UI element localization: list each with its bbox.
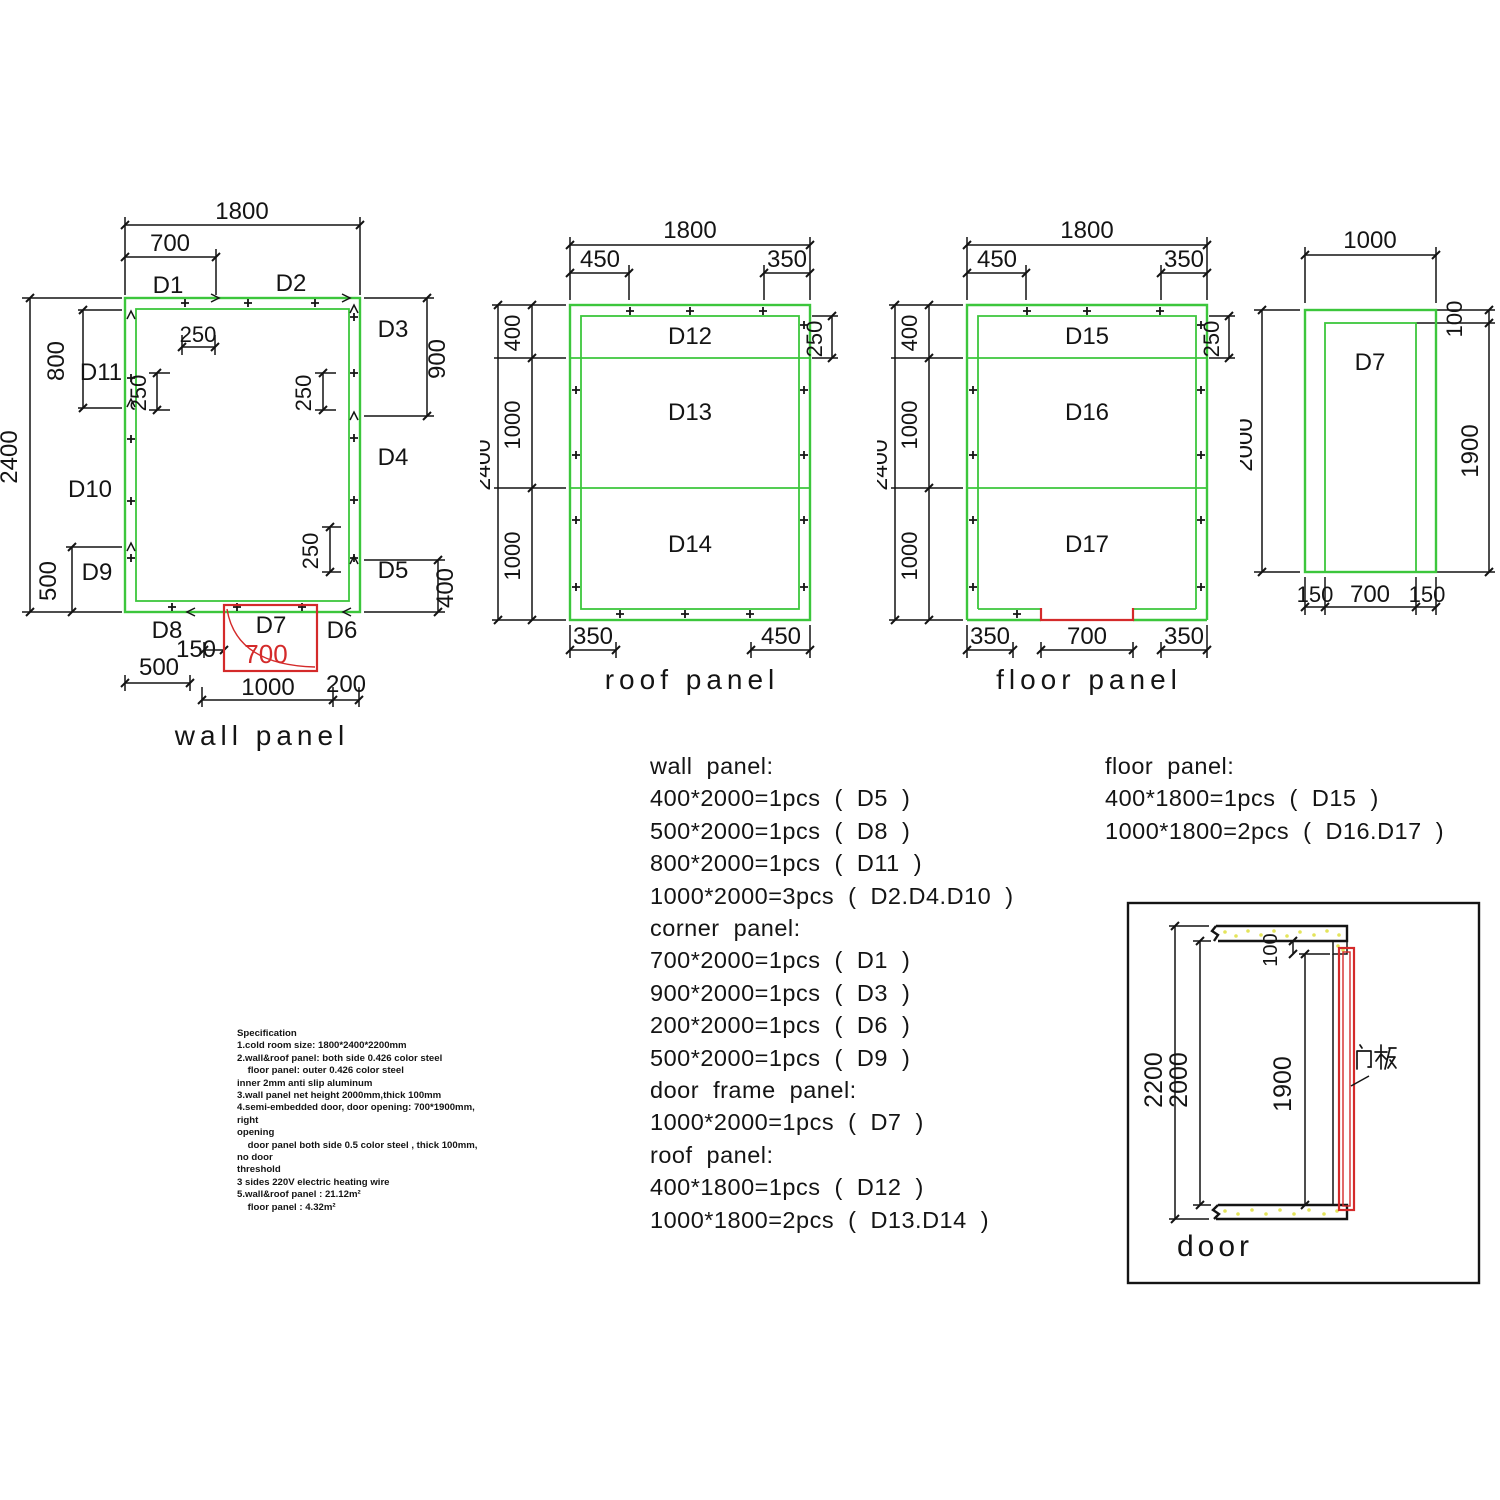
dim-label: 2200 [1140,1052,1168,1108]
panel-cut-list-left: wall panel: 400*2000=1pcs ( D5 ) 500*200… [650,750,1014,1236]
dim-label: 700 [1067,623,1107,650]
panel-label-d17: D17 [1065,531,1109,558]
dim-label: 2000 [1240,418,1258,471]
door-detail-title: door [1177,1230,1253,1263]
spec-line: inner 2mm anti slip aluminum [237,1078,537,1090]
dim-label: 1000 [241,674,294,701]
cam-lock-marks [969,307,1205,618]
panel-label-d1: D1 [153,272,184,299]
dim-label: 2400 [0,430,23,483]
dim-label: 1000 [500,532,525,581]
dim-label: 900 [424,339,451,379]
panel-label-d11: D11 [80,359,122,386]
dim-label: 250 [1199,321,1224,358]
wall-panel-outline [125,298,360,612]
dim-label: 450 [761,623,801,650]
panel-label-d4: D4 [378,444,409,471]
door-opening-width: 700 [244,639,287,669]
spec-line: right [237,1115,537,1127]
specification-block: Specification 1.cold room size: 1800*240… [237,1028,537,1214]
panel-label-d13: D13 [668,399,712,426]
panel-label-d7: D7 [256,612,287,639]
dim-label: 1000 [897,532,922,581]
spec-line: no door [237,1152,537,1164]
dim-label: 1000 [500,401,525,450]
list-line: 400*1800=1pcs ( D12 ) [650,1171,1014,1203]
dim-label: 800 [43,341,70,381]
spec-line: opening [237,1127,537,1139]
list-line: 1000*2000=3pcs ( D2.D4.D10 ) [650,880,1014,912]
dim-label: 100 [1442,301,1467,338]
spec-line: 5.wall&roof panel : 21.12m² [237,1189,537,1201]
panel-label-d14: D14 [668,531,712,558]
spec-line: 1.cold room size: 1800*2400*2200mm [237,1040,537,1052]
dim-label: 250 [180,322,217,347]
dim-label: 150 [1297,582,1334,607]
dim-label: 400 [500,315,525,352]
list-line: 800*2000=1pcs ( D11 ) [650,847,1014,879]
dim-label: 250 [126,375,151,412]
panel-label-d9: D9 [82,559,113,586]
floor-panel-outline [967,305,1207,620]
door-leaf-panel [1339,948,1354,1210]
list-line: 700*2000=1pcs ( D1 ) [650,944,1014,976]
spec-line: 3.wall panel net height 2000mm,thick 100… [237,1090,537,1102]
list-line: 500*2000=1pcs ( D8 ) [650,815,1014,847]
panel-label-d2: D2 [276,270,307,297]
dim-label: 700 [150,230,190,257]
dim-label: 1800 [1060,217,1113,244]
dim-label: 450 [580,246,620,273]
spec-line: 4.semi-embedded door, door opening: 700*… [237,1102,537,1114]
dim-label: 1800 [663,217,716,244]
list-line: wall panel: [650,750,1014,782]
cam-lock-marks [572,307,808,618]
dim-label: 350 [970,623,1010,650]
dim-label: 100 [1260,933,1282,966]
dim-label: 250 [802,321,827,358]
panel-label-d8: D8 [152,617,183,644]
dim-label: 1000 [1343,227,1396,254]
list-line: roof panel: [650,1139,1014,1171]
floor-door-notch [1041,608,1133,620]
dim-label: 1000 [897,401,922,450]
list-line: 200*2000=1pcs ( D6 ) [650,1009,1014,1041]
floor-panel-title: floor panel [996,664,1182,695]
list-line: 1000*1800=2pcs ( D16.D17 ) [1105,815,1444,847]
list-line: 1000*2000=1pcs ( D7 ) [650,1106,1014,1138]
list-line: door frame panel: [650,1074,1014,1106]
door-panel-label-cn [1357,1045,1396,1069]
dim-label: 500 [35,561,62,601]
dim-label: 700 [1350,581,1390,608]
wall-panel-diagram: 1800 700 2400 800 500 900 400 250 250 25… [0,195,500,770]
panel-label-d12: D12 [668,323,712,350]
dim-label: 350 [767,246,807,273]
dim-label: 350 [573,623,613,650]
dim-label: 1900 [1269,1056,1297,1112]
dim-label: 350 [1164,246,1204,273]
drawing-sheet: 1800 700 2400 800 500 900 400 250 250 25… [0,0,1500,1500]
dim-label: 400 [432,568,459,608]
panel-label-d3: D3 [378,316,409,343]
panel-label-d16: D16 [1065,399,1109,426]
spec-line: floor panel : 4.32m² [237,1202,537,1214]
floor-panel-diagram: 1800 450 350 2400 400 1000 1000 250 350 … [877,195,1277,720]
panel-label-d7: D7 [1355,349,1386,376]
dim-label: 500 [139,654,179,681]
wall-joint-marks [127,294,358,616]
wall-panel-title: wall panel [174,720,350,751]
list-line: 1000*1800=2pcs ( D13.D14 ) [650,1204,1014,1236]
dim-label: 2000 [1165,1052,1193,1108]
dim-label: 150 [1409,582,1446,607]
list-line: 400*2000=1pcs ( D5 ) [650,782,1014,814]
spec-line: door panel both side 0.5 color steel , t… [237,1140,537,1152]
list-line: 900*2000=1pcs ( D3 ) [650,977,1014,1009]
cam-lock-marks [127,299,358,611]
dim-label: 1800 [215,198,268,225]
spec-line: Specification [237,1028,537,1040]
dim-label: 250 [298,533,323,570]
list-line: 400*1800=1pcs ( D15 ) [1105,782,1444,814]
spec-line: 3 sides 220V electric heating wire [237,1177,537,1189]
spec-line: 2.wall&roof panel: both side 0.426 color… [237,1053,537,1065]
dim-label: 250 [291,375,316,412]
spec-line: floor panel: outer 0.426 color steel [237,1065,537,1077]
list-line: floor panel: [1105,750,1444,782]
panel-label-d6: D6 [327,617,358,644]
dim-label: 200 [326,671,366,698]
panel-label-d15: D15 [1065,323,1109,350]
panel-label-d10: D10 [68,476,112,503]
list-line: corner panel: [650,912,1014,944]
roof-panel-title: roof panel [605,664,780,695]
panel-cut-list-right: floor panel: 400*1800=1pcs ( D15 ) 1000*… [1105,750,1444,847]
dim-label: 1900 [1457,424,1484,477]
spec-line: threshold [237,1164,537,1176]
roof-panel-outline [570,305,810,620]
dim-label: 2400 [480,439,495,490]
door-frame-panel-diagram: 1000 2000 1900 100 150 700 150 D7 [1240,195,1500,665]
list-line: 500*2000=1pcs ( D9 ) [650,1042,1014,1074]
roof-panel-diagram: 1800 450 350 2400 400 1000 1000 250 350 … [480,195,880,720]
dim-label: 400 [897,315,922,352]
panel-label-d5: D5 [378,557,409,584]
dim-label: 350 [1164,623,1204,650]
floor-dimension-lines [889,237,1235,658]
dim-label: 2400 [877,439,892,490]
door-detail-diagram: 2200 2000 1900 100 door [1125,898,1485,1290]
roof-dimension-lines [492,237,838,658]
dim-label: 450 [977,246,1017,273]
